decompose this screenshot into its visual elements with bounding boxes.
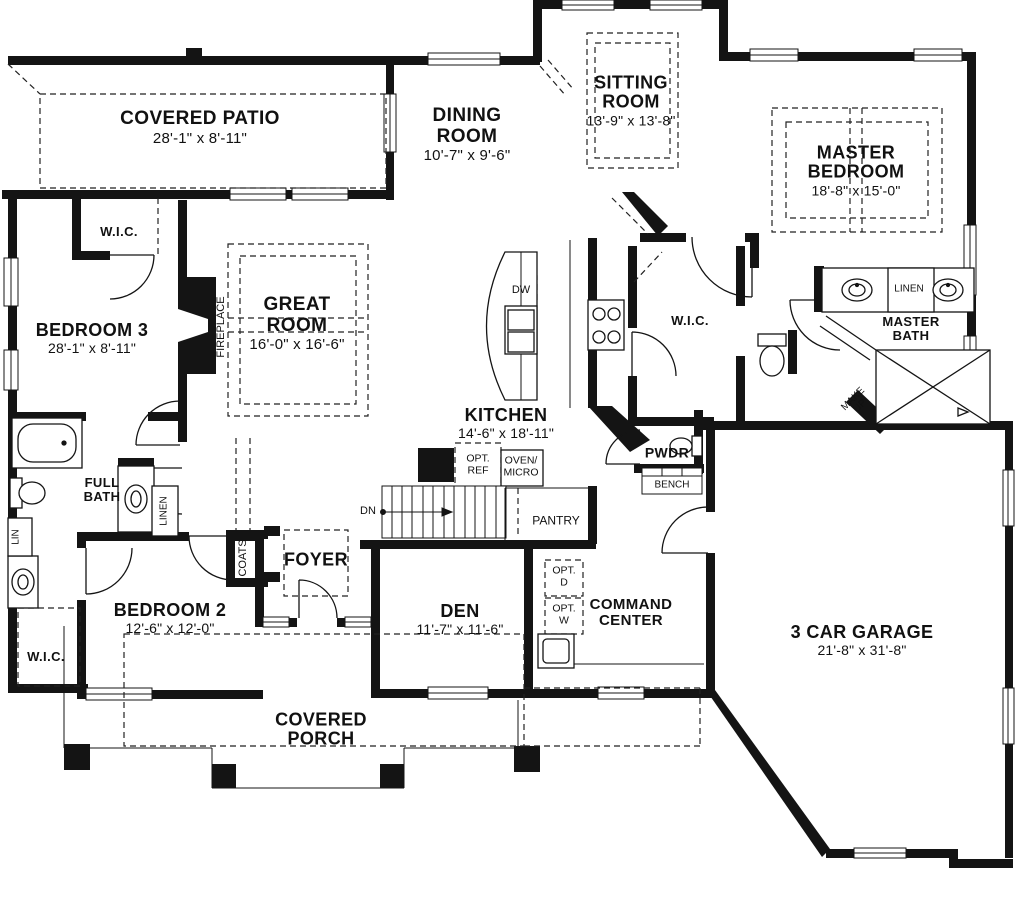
label-linen-master: LINEN: [894, 285, 923, 296]
room-label-command-center: COMMAND CENTER: [574, 597, 689, 629]
vanity-hall: [8, 556, 38, 608]
room-label-covered-patio: COVERED PATIO 28'-1" x 8'-11": [115, 109, 285, 147]
kitchen-island: [487, 252, 538, 400]
room-label-wic-bedroom2: W.I.C.: [11, 650, 81, 664]
room-label-sitting-room: SITTING ROOM 13'-9" x 13'-8": [581, 74, 681, 129]
label-fireplace: FIREPLACE: [216, 296, 228, 357]
toilet-full-bath: [10, 478, 45, 508]
laundry-sink: [538, 634, 574, 668]
room-label-full-bath: FULL BATH: [73, 476, 131, 504]
room-label-wic-bedroom3: W.I.C.: [84, 225, 154, 239]
label-dw: DW: [512, 285, 530, 297]
label-linen-bath: LINEN: [160, 496, 171, 525]
room-label-foyer: FOYER: [266, 550, 366, 569]
room-label-great-room: GREAT ROOM 16'-0" x 16'-6": [247, 295, 347, 353]
room-label-bedroom-2: BEDROOM 2 12'-6" x 12'-0": [60, 601, 280, 637]
room-label-master-bedroom: MASTER BEDROOM 18'-8" x 15'-0": [796, 144, 916, 199]
label-lin: LIN: [12, 529, 23, 545]
room-label-bedroom-3: BEDROOM 3 28'-1" x 8'-11": [0, 321, 192, 357]
room-label-covered-porch: COVERED PORCH: [256, 711, 386, 750]
room-label-kitchen: KITCHEN 14'-6" x 18'-11": [406, 406, 606, 442]
room-label-den: DEN 11'-7" x 11'-6": [360, 602, 560, 638]
label-opt-ref: OPT. REF: [466, 453, 489, 476]
label-coats: COATS: [238, 539, 250, 576]
bathtub: [12, 418, 82, 468]
label-oven-micro: OVEN/ MICRO: [504, 455, 539, 478]
cooktop: [588, 300, 624, 350]
label-opt-w: OPT. W: [552, 603, 575, 626]
room-label-garage: 3 CAR GARAGE 21'-8" x 31'-8": [742, 623, 982, 659]
label-bench: BENCH: [642, 481, 702, 492]
room-label-pwdr: PWDR: [637, 445, 697, 460]
room-label-pantry: PANTRY: [516, 515, 596, 528]
label-dn: DN: [360, 506, 376, 518]
porch-slab: [64, 626, 518, 788]
room-label-master-bath: MASTER BATH: [871, 315, 951, 343]
room-label-dining-room: DINING ROOM 10'-7" x 9'-6": [412, 106, 522, 164]
floor-plan: COVERED PATIO 28'-1" x 8'-11" DINING ROO…: [0, 0, 1024, 898]
label-opt-d: OPT. D: [552, 565, 575, 588]
stairs: [381, 486, 507, 538]
toilet-master: [758, 334, 786, 376]
room-label-wic-master: W.I.C.: [655, 314, 725, 328]
